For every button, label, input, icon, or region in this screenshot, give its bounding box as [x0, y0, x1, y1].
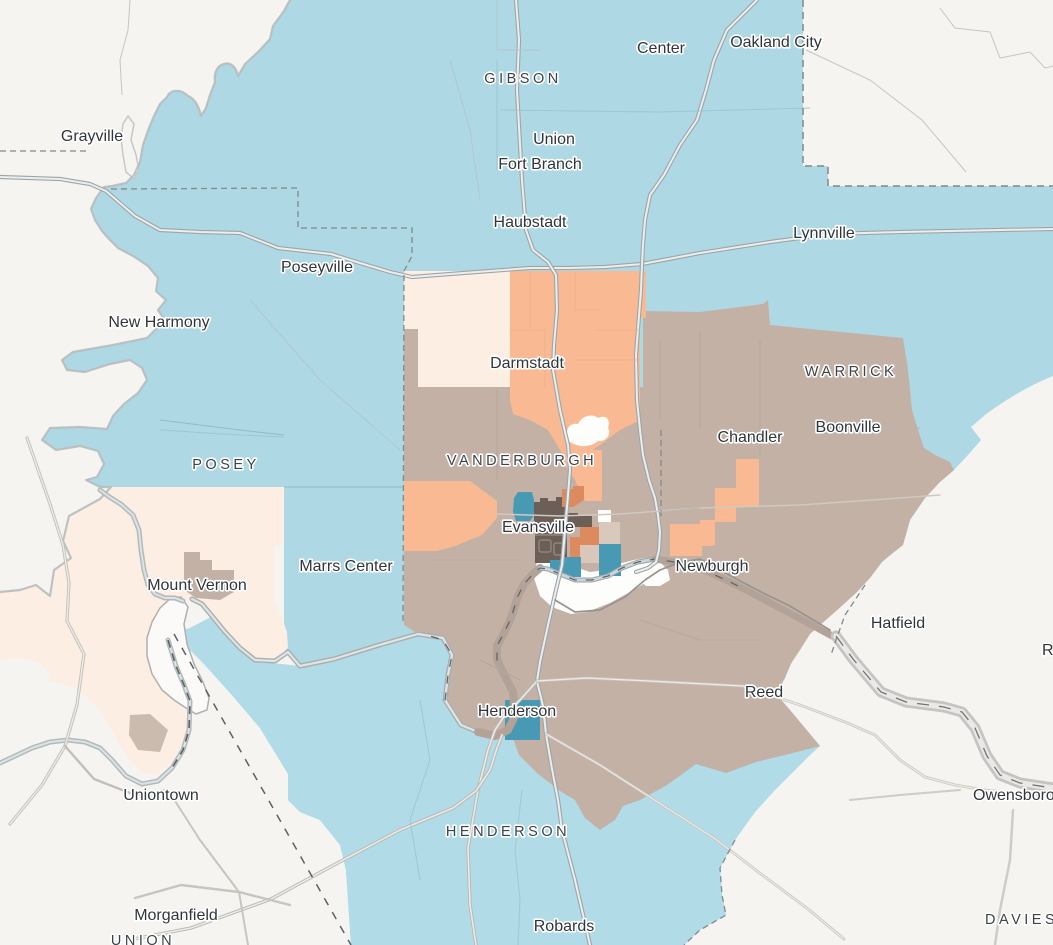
svg-text:Haubstadt: Haubstadt	[494, 214, 567, 231]
svg-text:Owensboro: Owensboro	[973, 787, 1053, 804]
svg-text:Robards: Robards	[534, 918, 594, 935]
svg-text:WARRICK: WARRICK	[805, 364, 897, 380]
svg-text:Grayville: Grayville	[61, 128, 123, 145]
svg-text:HENDERSON: HENDERSON	[446, 824, 570, 840]
svg-text:Poseyville: Poseyville	[281, 259, 353, 276]
svg-text:New Harmony: New Harmony	[108, 314, 209, 331]
svg-text:Marrs Center: Marrs Center	[299, 558, 393, 575]
svg-text:Lynnville: Lynnville	[793, 225, 855, 242]
svg-text:Mount Vernon: Mount Vernon	[147, 577, 247, 594]
svg-text:Oakland City: Oakland City	[730, 34, 822, 51]
svg-text:Fort Branch: Fort Branch	[498, 156, 582, 173]
svg-text:Uniontown: Uniontown	[123, 787, 199, 804]
svg-text:Reo: Reo	[1042, 642, 1053, 659]
svg-text:Evansville: Evansville	[502, 519, 574, 536]
svg-text:Newburgh: Newburgh	[676, 558, 749, 575]
svg-text:Union: Union	[533, 131, 575, 148]
svg-text:POSEY: POSEY	[192, 457, 259, 473]
svg-text:VANDERBURGH: VANDERBURGH	[447, 453, 597, 469]
svg-text:Chandler: Chandler	[718, 429, 784, 446]
svg-text:Henderson: Henderson	[478, 703, 556, 720]
svg-text:Boonville: Boonville	[816, 419, 881, 436]
svg-text:Morganfield: Morganfield	[134, 907, 218, 924]
svg-text:GIBSON: GIBSON	[484, 71, 561, 87]
svg-text:Darmstadt: Darmstadt	[490, 355, 564, 372]
svg-text:DAVIESS: DAVIESS	[985, 912, 1053, 928]
svg-text:UNION: UNION	[111, 933, 175, 945]
svg-text:Hatfield: Hatfield	[871, 615, 925, 632]
svg-text:Center: Center	[637, 40, 686, 57]
svg-text:Reed: Reed	[745, 684, 783, 701]
